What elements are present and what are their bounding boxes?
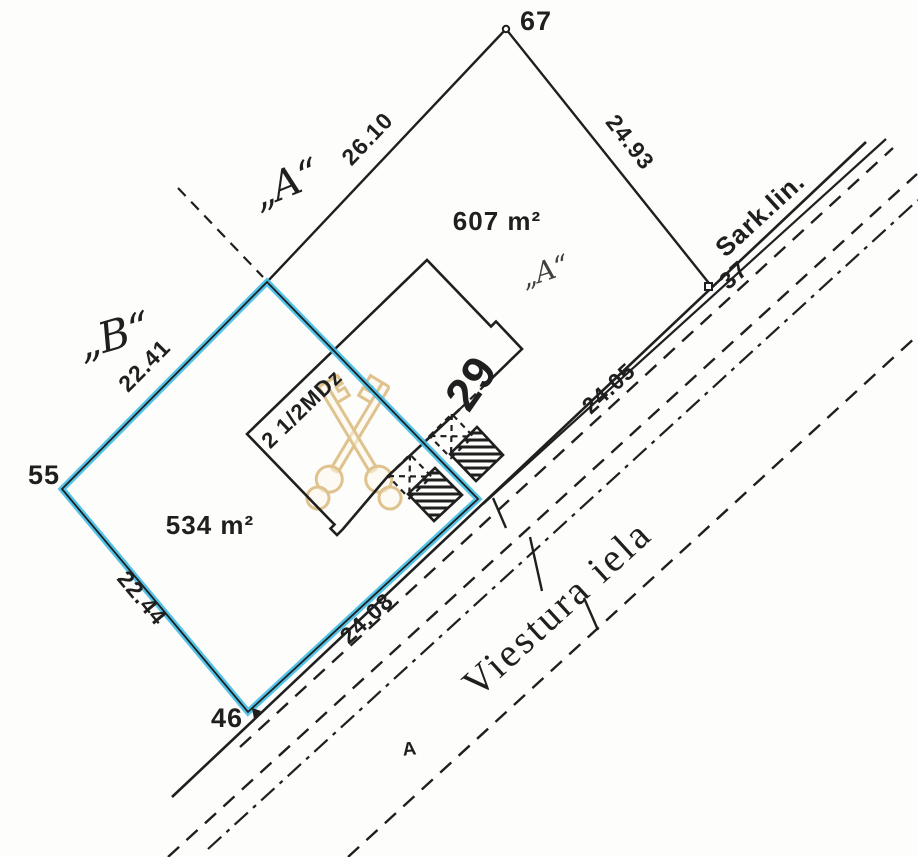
street-lines <box>168 139 918 857</box>
survey-tick-1 <box>493 498 506 528</box>
area-plot-b-label: 534 m² <box>166 510 254 540</box>
point-37-marker <box>705 283 712 290</box>
dim-22-44: 22.44 <box>112 566 172 631</box>
area-plot-a-label: 607 m² <box>453 206 541 236</box>
cadastral-plan-svg: 67 55 46 37 26.10 24.93 22.41 22.44 24.0… <box>0 0 918 857</box>
street-curb-line <box>483 139 886 504</box>
boundary-a-small-script-label: „A“ <box>517 248 574 295</box>
point-67-marker <box>503 26 509 32</box>
point-46-label: 46 <box>211 703 243 733</box>
street-dashed-line-3 <box>348 335 918 857</box>
boundary-a-script-label: „A“ <box>245 149 327 218</box>
survey-tick-2 <box>530 537 542 591</box>
dim-24-08: 24.08 <box>335 587 399 648</box>
street-name-label: Viestura iela <box>453 510 660 705</box>
dim-26-10: 26.10 <box>336 107 398 170</box>
survey-plan-page: 67 55 46 37 26.10 24.93 22.41 22.44 24.0… <box>0 0 918 857</box>
street-dashdot-line <box>208 200 918 849</box>
point-67-label: 67 <box>520 6 552 36</box>
point-55-label: 55 <box>28 460 60 490</box>
street-red-line <box>172 142 866 797</box>
dim-24-93: 24.93 <box>601 109 660 174</box>
red-line-label: Sark.lin. <box>709 166 810 263</box>
street-arrow-marker-label: A <box>401 738 417 760</box>
boundary-extension-dashed <box>178 188 263 277</box>
house-number-label: 29 <box>434 346 507 419</box>
